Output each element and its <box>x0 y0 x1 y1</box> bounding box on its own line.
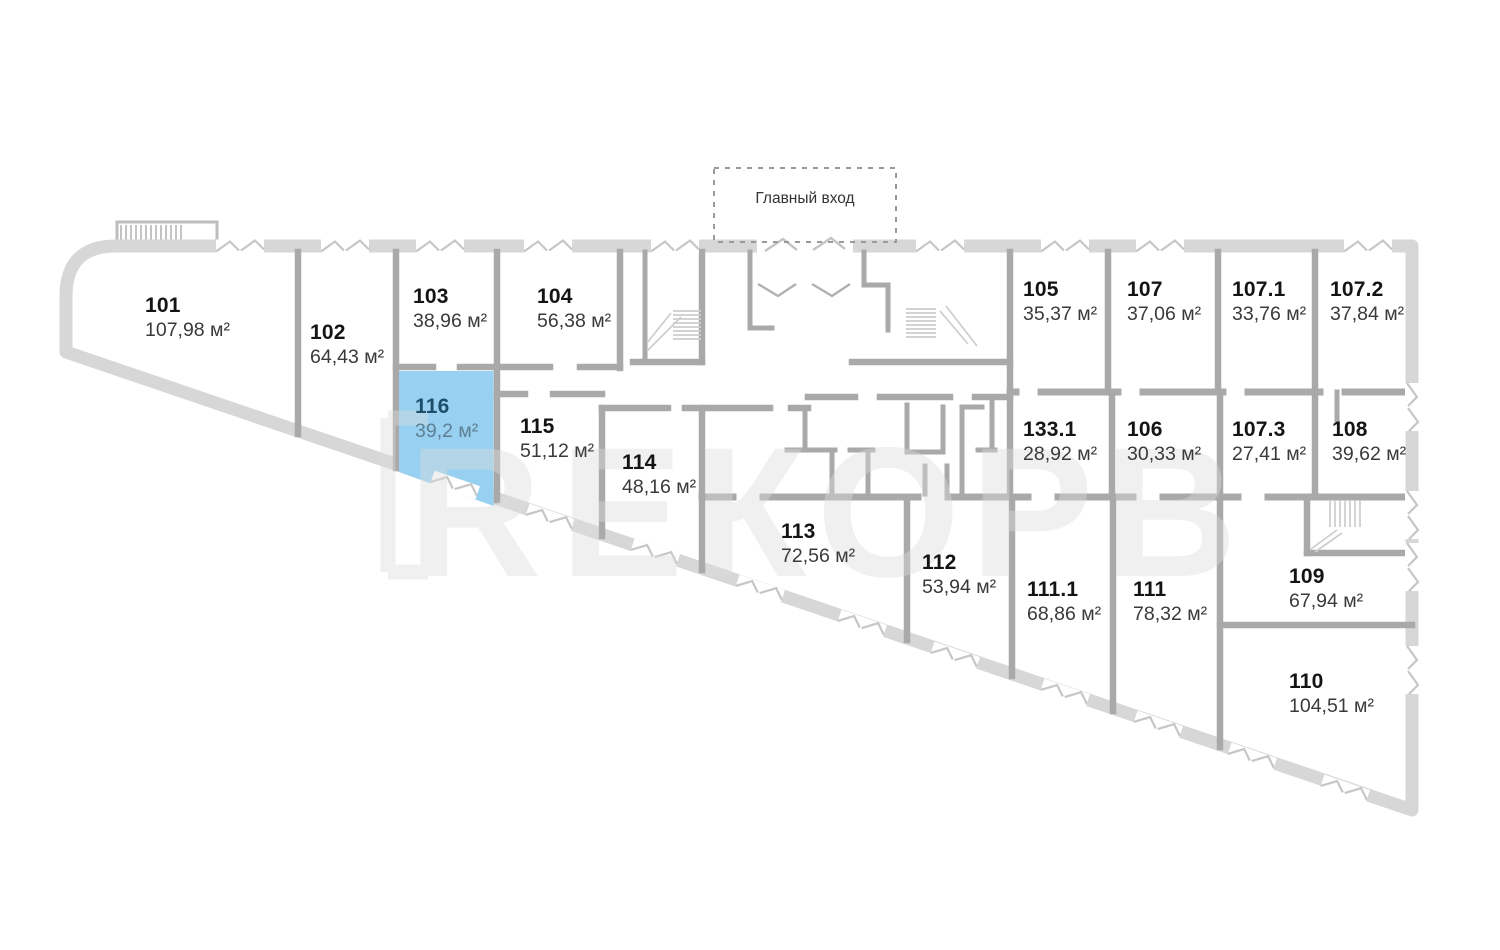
unit-area: 39,2 м² <box>415 421 478 441</box>
unit-number: 101 <box>145 295 230 317</box>
unit-label-108[interactable]: 10839,62 м² <box>1332 419 1406 465</box>
unit-area: 35,37 м² <box>1023 304 1097 324</box>
unit-label-111-1[interactable]: 111.168,86 м² <box>1027 579 1101 625</box>
unit-area: 27,41 м² <box>1232 444 1306 464</box>
unit-number: 107.2 <box>1330 279 1404 301</box>
unit-number: 107.3 <box>1232 419 1306 441</box>
unit-label-115[interactable]: 11551,12 м² <box>520 416 594 462</box>
unit-area: 64,43 м² <box>310 347 384 367</box>
unit-number: 112 <box>922 552 996 574</box>
unit-area: 38,96 м² <box>413 311 487 331</box>
unit-label-113[interactable]: 11372,56 м² <box>781 521 855 567</box>
main-entrance-zone <box>714 168 896 242</box>
unit-number: 115 <box>520 416 594 438</box>
unit-area: 68,86 м² <box>1027 604 1101 624</box>
unit-label-111[interactable]: 11178,32 м² <box>1133 579 1207 625</box>
unit-label-112[interactable]: 11253,94 м² <box>922 552 996 598</box>
unit-label-103[interactable]: 10338,96 м² <box>413 286 487 332</box>
unit-area: 33,76 м² <box>1232 304 1306 324</box>
unit-number: 105 <box>1023 279 1097 301</box>
unit-label-107-2[interactable]: 107.237,84 м² <box>1330 279 1404 325</box>
window-break-marks-right <box>1405 383 1419 694</box>
unit-label-105[interactable]: 10535,37 м² <box>1023 279 1097 325</box>
unit-number: 103 <box>413 286 487 308</box>
unit-number: 104 <box>537 286 611 308</box>
unit-label-116[interactable]: 11639,2 м² <box>415 396 478 442</box>
unit-label-107-1[interactable]: 107.133,76 м² <box>1232 279 1306 325</box>
unit-number: 111 <box>1133 579 1207 601</box>
unit-number: 110 <box>1289 671 1374 693</box>
unit-number: 107.1 <box>1232 279 1306 301</box>
unit-label-133-1[interactable]: 133.128,92 м² <box>1023 419 1097 465</box>
unit-label-102[interactable]: 10264,43 м² <box>310 322 384 368</box>
unit-area: 72,56 м² <box>781 546 855 566</box>
unit-number: 106 <box>1127 419 1201 441</box>
unit-area: 104,51 м² <box>1289 696 1374 716</box>
unit-label-107-3[interactable]: 107.327,41 м² <box>1232 419 1306 465</box>
unit-area: 48,16 м² <box>622 477 696 497</box>
unit-area: 67,94 м² <box>1289 591 1363 611</box>
unit-area: 56,38 м² <box>537 311 611 331</box>
unit-area: 30,33 м² <box>1127 444 1201 464</box>
unit-number: 116 <box>415 396 478 418</box>
unit-area: 39,62 м² <box>1332 444 1406 464</box>
unit-area: 51,12 м² <box>520 441 594 461</box>
floor-plan-page: R ЕКОРВ 101107,98 м² 10264,43 м² 10338,9… <box>0 0 1500 950</box>
unit-label-107[interactable]: 10737,06 м² <box>1127 279 1201 325</box>
unit-number: 109 <box>1289 566 1363 588</box>
unit-label-114[interactable]: 11448,16 м² <box>622 452 696 498</box>
unit-area: 37,84 м² <box>1330 304 1404 324</box>
unit-area: 28,92 м² <box>1023 444 1097 464</box>
unit-area: 37,06 м² <box>1127 304 1201 324</box>
unit-number: 133.1 <box>1023 419 1097 441</box>
unit-label-101[interactable]: 101107,98 м² <box>145 295 230 341</box>
watermark: R ЕКОРВ <box>388 410 1247 616</box>
unit-number: 102 <box>310 322 384 344</box>
unit-number: 111.1 <box>1027 579 1101 601</box>
unit-area: 53,94 м² <box>922 577 996 597</box>
unit-label-104[interactable]: 10456,38 м² <box>537 286 611 332</box>
unit-label-110[interactable]: 110104,51 м² <box>1289 671 1374 717</box>
unit-label-109[interactable]: 10967,94 м² <box>1289 566 1363 612</box>
floor-plan-canvas: R ЕКОРВ <box>0 0 1500 950</box>
unit-label-106[interactable]: 10630,33 м² <box>1127 419 1201 465</box>
unit-area: 78,32 м² <box>1133 604 1207 624</box>
unit-number: 108 <box>1332 419 1406 441</box>
unit-area: 107,98 м² <box>145 320 230 340</box>
unit-number: 113 <box>781 521 855 543</box>
unit-number: 114 <box>622 452 696 474</box>
unit-number: 107 <box>1127 279 1201 301</box>
